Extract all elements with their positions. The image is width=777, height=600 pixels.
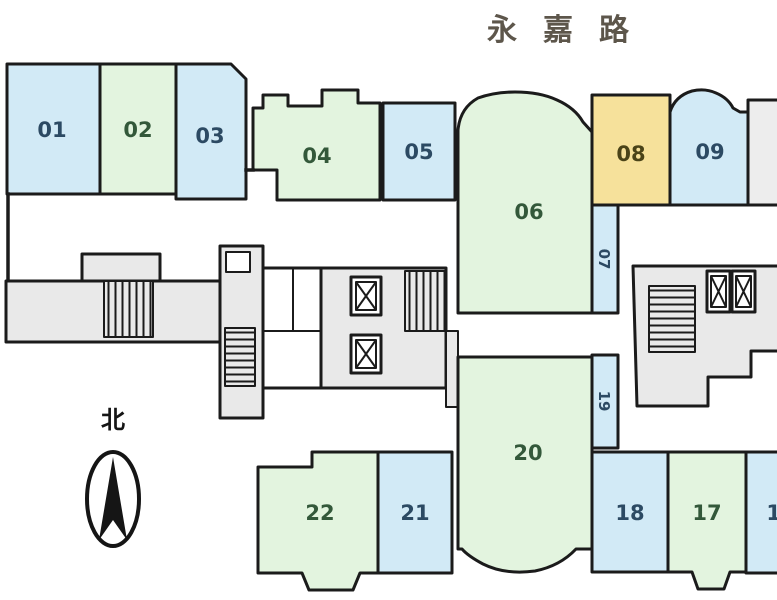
- room-20-label: 20: [513, 441, 542, 465]
- room-07: 07: [592, 205, 618, 313]
- stair-landing: [82, 254, 160, 282]
- room-20: 20: [458, 357, 592, 572]
- staircase-icon-central: [405, 271, 446, 331]
- inner-rooms: [263, 268, 321, 388]
- core-right: [633, 266, 777, 406]
- room-18: 18: [592, 452, 668, 572]
- staircase-icon-west: [104, 281, 153, 337]
- north-symbol-label: 北: [101, 406, 125, 434]
- compass-needle-icon: [99, 457, 127, 540]
- elevator-icon-3: [707, 271, 730, 312]
- elevator-icon-4: [732, 271, 755, 312]
- staircase-icon-east: [649, 286, 695, 352]
- room-22-label: 22: [305, 501, 334, 525]
- room-19-label: 19: [595, 391, 613, 412]
- elevator-icon-2: [351, 335, 381, 373]
- room-17: 17: [668, 452, 746, 589]
- room-21-label: 21: [400, 501, 429, 525]
- room-01: 01: [7, 64, 100, 194]
- room-08-label: 08: [616, 142, 645, 166]
- room-04: 04: [253, 90, 380, 200]
- room-09: 09: [670, 90, 748, 205]
- room-17-label: 17: [692, 501, 721, 525]
- room-19: 19: [592, 355, 618, 448]
- room-08: 08: [592, 95, 670, 205]
- street-name-label: 永嘉路: [487, 13, 655, 48]
- elevator-lobby: [321, 268, 446, 388]
- corridor-connector: [446, 331, 458, 407]
- floor-plan: 永嘉路 01 02 03 04 05 06 07 08 09: [0, 0, 777, 600]
- compass-icon: 北: [87, 406, 139, 546]
- room-06-label: 06: [514, 200, 543, 224]
- elevator-icon-1: [351, 277, 381, 315]
- room-05: 05: [383, 103, 455, 200]
- room-03: 03: [176, 64, 246, 199]
- room-01-label: 01: [37, 118, 66, 142]
- room-02: 02: [100, 64, 176, 194]
- room-18-label: 18: [615, 501, 644, 525]
- room-05-label: 05: [404, 140, 433, 164]
- room-07-label: 07: [595, 249, 613, 270]
- room-16-label: 16: [766, 501, 777, 525]
- room-16: 16: [746, 452, 777, 573]
- room-03-label: 03: [195, 124, 224, 148]
- room-06: 06: [458, 92, 592, 313]
- staircase-icon-tower: [225, 328, 255, 386]
- tower-landing: [226, 252, 250, 272]
- room-unlabeled-top-right: [748, 100, 777, 205]
- room-21: 21: [378, 452, 452, 573]
- room-04-label: 04: [302, 144, 331, 168]
- room-09-label: 09: [695, 140, 724, 164]
- room-02-label: 02: [123, 118, 152, 142]
- room-22: 22: [258, 452, 378, 590]
- floor-plan-svg: 永嘉路 01 02 03 04 05 06 07 08 09: [0, 0, 777, 600]
